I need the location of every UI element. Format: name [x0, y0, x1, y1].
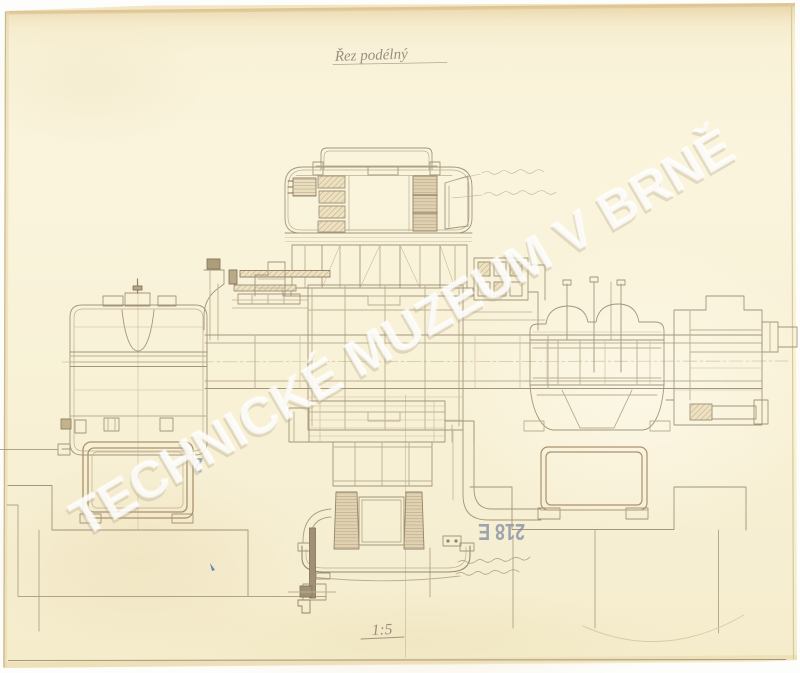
svg-text:218 E: 218 E	[478, 518, 525, 544]
svg-text:1:5: 1:5	[371, 621, 393, 639]
svg-text:Řez podélný: Řez podélný	[334, 45, 409, 65]
